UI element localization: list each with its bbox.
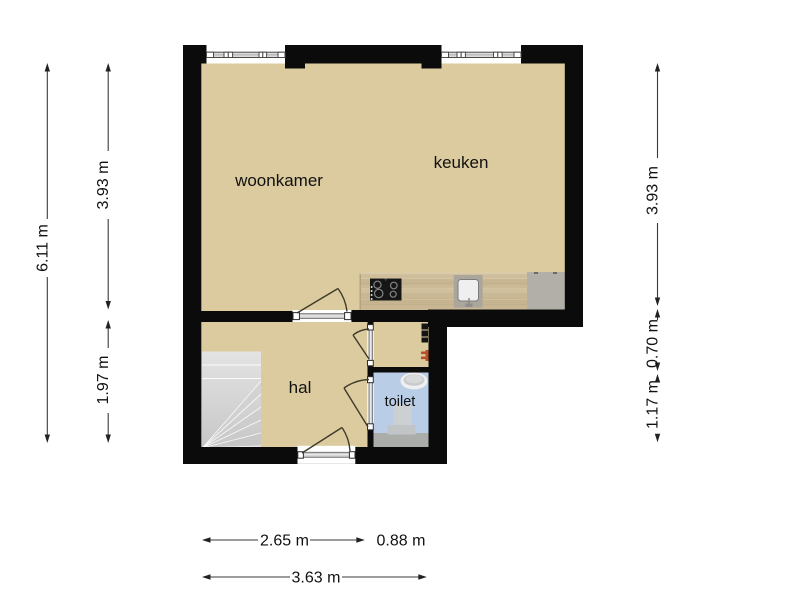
- svg-text:hal: hal: [289, 378, 312, 397]
- svg-text:0.88 m: 0.88 m: [377, 533, 426, 550]
- svg-text:0.70 m: 0.70 m: [645, 319, 662, 368]
- svg-text:woonkamer: woonkamer: [234, 171, 323, 190]
- svg-text:1.17 m: 1.17 m: [645, 380, 662, 429]
- svg-text:2.65 m: 2.65 m: [260, 533, 309, 550]
- svg-text:1.97 m: 1.97 m: [95, 356, 112, 405]
- svg-text:3.93 m: 3.93 m: [645, 166, 662, 215]
- svg-text:3.63 m: 3.63 m: [292, 570, 341, 587]
- svg-text:keuken: keuken: [434, 153, 489, 172]
- svg-text:3.93 m: 3.93 m: [95, 161, 112, 210]
- svg-text:toilet: toilet: [385, 394, 416, 410]
- svg-text:6.11 m: 6.11 m: [34, 224, 51, 272]
